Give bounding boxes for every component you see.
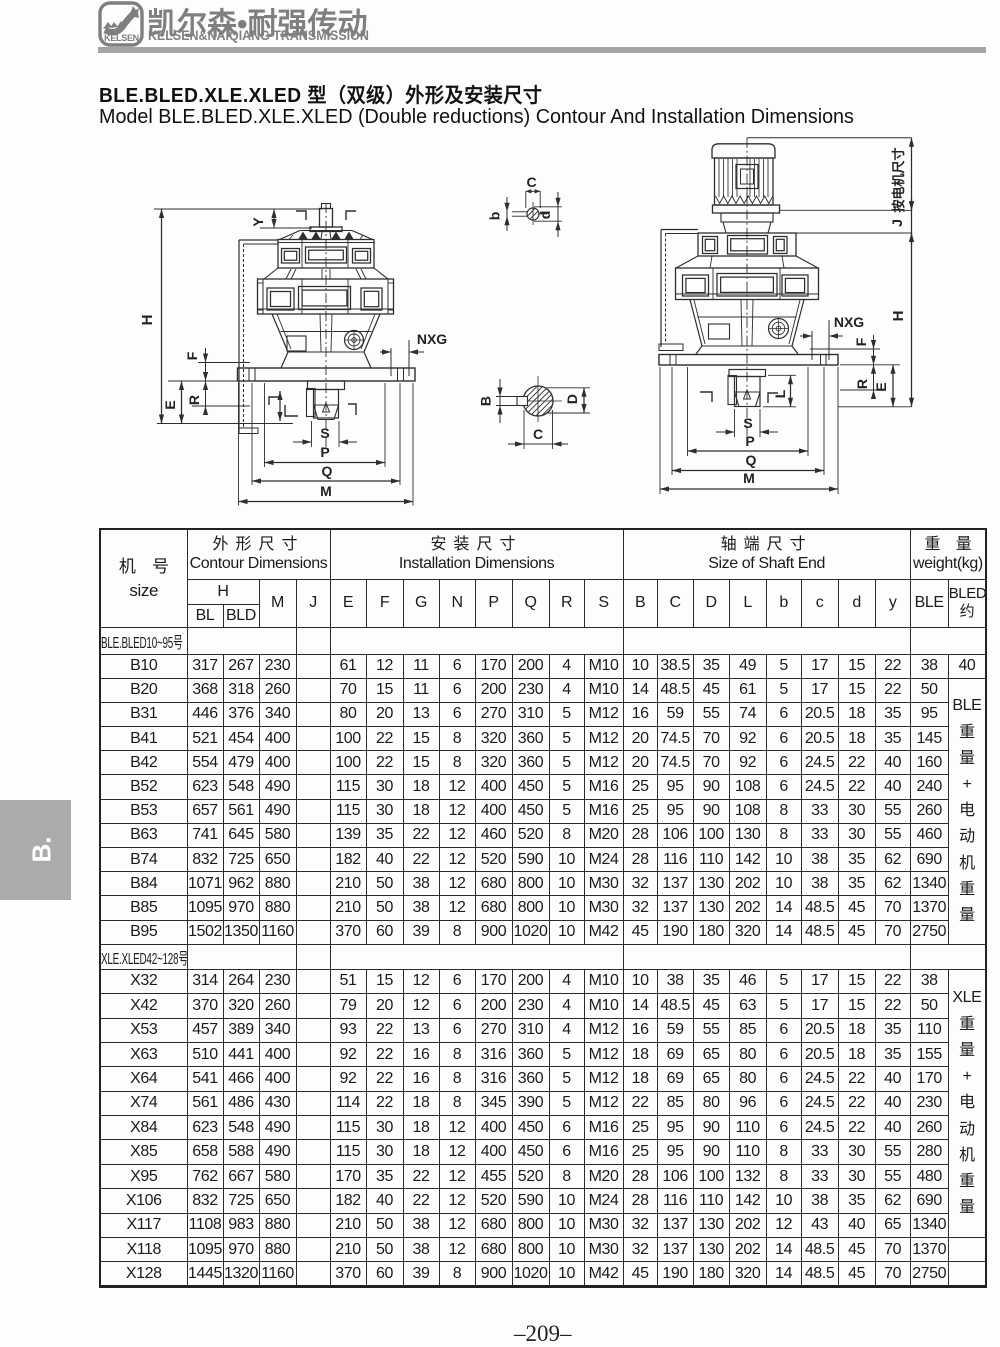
svg-text:d: d <box>537 211 553 220</box>
svg-text:按电机尺寸: 按电机尺寸 <box>891 147 906 212</box>
svg-text:P: P <box>745 433 754 449</box>
svg-text:S: S <box>743 415 752 431</box>
svg-text:F: F <box>853 337 869 346</box>
svg-text:R: R <box>186 395 202 405</box>
svg-text:b: b <box>487 212 503 221</box>
svg-text:C: C <box>526 174 536 190</box>
svg-text:R: R <box>854 379 870 389</box>
svg-text:C: C <box>533 426 543 442</box>
svg-text:J: J <box>889 219 905 227</box>
svg-text:L: L <box>772 389 788 398</box>
svg-text:M: M <box>320 483 332 499</box>
svg-text:F: F <box>184 351 200 360</box>
svg-text:Q: Q <box>322 463 333 479</box>
svg-text:B: B <box>478 396 494 406</box>
svg-text:E: E <box>873 382 889 391</box>
svg-text:Q: Q <box>746 452 757 468</box>
svg-text:NXG: NXG <box>834 314 864 330</box>
svg-text:H: H <box>139 315 156 326</box>
svg-text:E: E <box>162 400 178 409</box>
svg-text:D: D <box>564 394 580 404</box>
svg-text:H: H <box>890 311 907 322</box>
svg-text:M: M <box>743 470 755 486</box>
svg-text:Y: Y <box>250 217 266 227</box>
svg-text:NXG: NXG <box>417 331 447 347</box>
svg-text:S: S <box>320 425 329 441</box>
svg-text:P: P <box>320 444 329 460</box>
